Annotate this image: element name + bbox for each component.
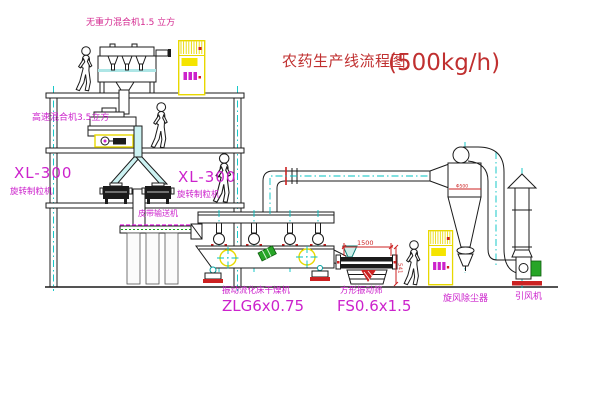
belt-conveyor-label: 皮带输送机 xyxy=(138,208,178,218)
worker-second-floor xyxy=(151,103,167,148)
dryer-model-label: ZLG6x0.75 xyxy=(222,297,304,315)
screen-height-dim: 541 xyxy=(397,263,403,274)
granulator-right-name: 旋转制粒机 xyxy=(177,189,220,200)
induced-draft-fan xyxy=(512,257,542,286)
vibrating-screen xyxy=(336,255,397,284)
belt-conveyor xyxy=(120,224,202,284)
cyclone-label: 旋风除尘器 xyxy=(443,292,488,304)
gravity-free-mixer xyxy=(98,44,171,93)
worker-ground xyxy=(404,241,420,285)
screen-length-dim: 1500 xyxy=(357,239,374,247)
cad-canvas: 1500 541 Φ500 农药生产线流程图 (500kg/h) 无重力混合机1… xyxy=(0,0,600,403)
control-cabinet-ground xyxy=(429,231,453,285)
granulator-right-model: XL-300 xyxy=(178,168,236,186)
diagram-title-capacity: (500kg/h) xyxy=(388,50,500,76)
dryer-name-label: 振动流化床干燥机 xyxy=(222,285,291,296)
granulator-left xyxy=(100,183,132,204)
granulator-left-name: 旋转制粒机 xyxy=(10,186,53,197)
granulator-right xyxy=(142,183,174,204)
high-speed-mixer-label: 高速混合机3.5立方 xyxy=(32,111,109,123)
worker-top-floor xyxy=(76,47,92,91)
cyclone-dim: Φ500 xyxy=(456,184,468,190)
control-cabinet-top xyxy=(179,41,205,95)
screen-model-label: FS0.6x1.5 xyxy=(337,297,411,315)
screen-name-label: 方形振动筛 xyxy=(340,285,383,296)
gravity-mixer-label: 无重力混合机1.5 立方 xyxy=(86,16,175,28)
process-flow-drawing: 1500 541 Φ500 农药生产线流程图 (500kg/h) 无重力混合机1… xyxy=(0,0,600,403)
fan-label: 引风机 xyxy=(515,290,542,302)
mixer-drop-pipe xyxy=(119,90,129,114)
granulator-discharge-column xyxy=(133,189,145,227)
granulator-left-model: XL-300 xyxy=(14,164,72,182)
